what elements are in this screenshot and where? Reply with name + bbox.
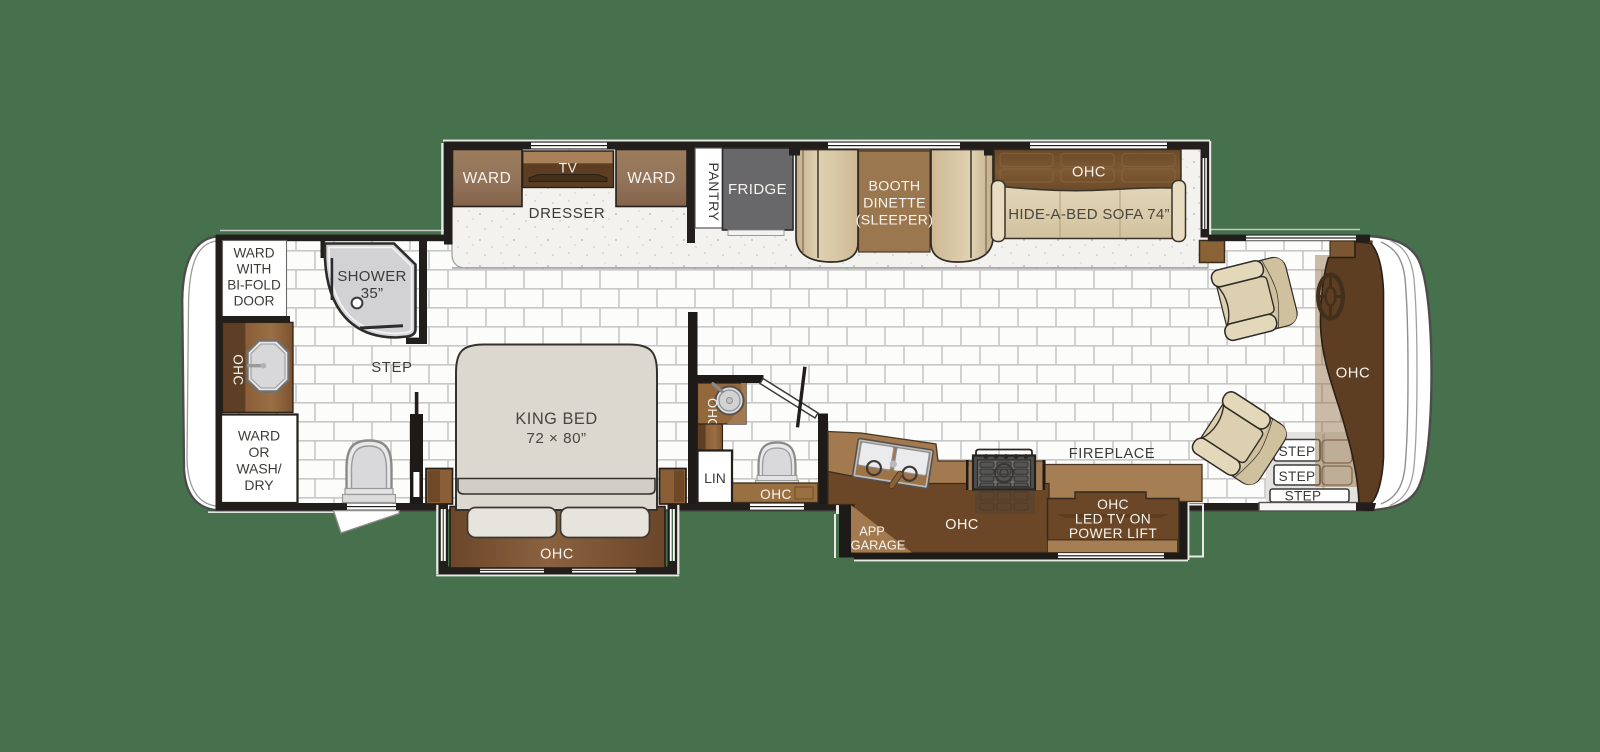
svg-text:OR: OR [249, 444, 270, 460]
svg-text:LIN: LIN [704, 470, 726, 486]
svg-text:OHC: OHC [231, 354, 246, 385]
svg-text:WARD: WARD [238, 428, 280, 444]
svg-text:DINETTE: DINETTE [863, 196, 926, 212]
svg-text:35”: 35” [361, 285, 384, 302]
svg-text:FIREPLACE: FIREPLACE [1069, 446, 1156, 462]
svg-text:GARAGE: GARAGE [851, 538, 906, 553]
svg-text:DRY: DRY [244, 477, 274, 493]
svg-text:WASH/: WASH/ [236, 461, 281, 477]
svg-text:WARD: WARD [627, 170, 675, 187]
svg-text:OHC: OHC [760, 487, 792, 502]
svg-text:STEP: STEP [371, 360, 412, 376]
svg-text:FRIDGE: FRIDGE [728, 181, 787, 198]
svg-text:DRESSER: DRESSER [529, 205, 606, 222]
svg-text:OHC: OHC [540, 547, 574, 563]
svg-text:BOOTH: BOOTH [869, 179, 921, 195]
svg-text:BI-FOLD: BI-FOLD [227, 278, 281, 293]
svg-text:OHC: OHC [1072, 165, 1106, 181]
svg-text:OHC: OHC [945, 517, 978, 533]
svg-text:(SLEEPER): (SLEEPER) [856, 213, 934, 229]
svg-text:TV: TV [559, 161, 578, 176]
svg-text:STEP: STEP [1279, 469, 1316, 484]
svg-text:WITH: WITH [237, 262, 272, 277]
svg-text:WARD: WARD [233, 246, 274, 261]
svg-text:OHC: OHC [1097, 497, 1129, 512]
svg-text:DOOR: DOOR [234, 294, 275, 309]
svg-text:PANTRY: PANTRY [706, 162, 722, 221]
svg-text:LED TV ON: LED TV ON [1075, 512, 1151, 527]
svg-text:STEP: STEP [1285, 489, 1322, 504]
svg-text:POWER LIFT: POWER LIFT [1069, 526, 1157, 541]
svg-text:WARD: WARD [463, 170, 511, 187]
svg-text:KING BED: KING BED [515, 410, 597, 428]
svg-text:SHOWER: SHOWER [337, 268, 406, 285]
svg-text:APP: APP [859, 524, 885, 539]
svg-text:HIDE-A-BED SOFA 74”: HIDE-A-BED SOFA 74” [1008, 206, 1170, 223]
svg-text:OHC: OHC [1336, 366, 1370, 382]
svg-text:72 × 80”: 72 × 80” [526, 430, 586, 447]
svg-text:STEP: STEP [1279, 444, 1316, 459]
